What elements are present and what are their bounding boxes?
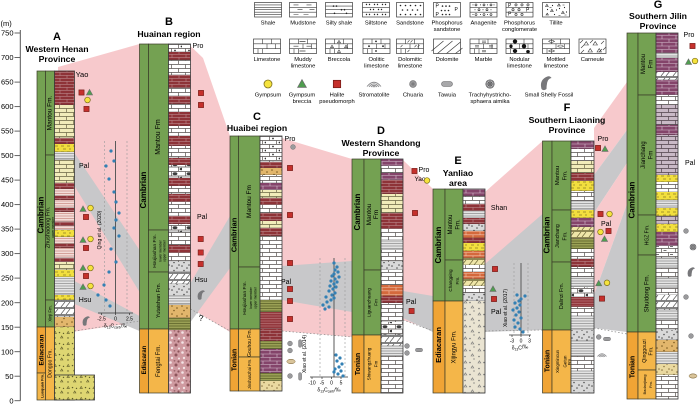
svg-text:sphaera aimika: sphaera aimika [470, 99, 510, 105]
svg-text:Mantou Fm: Mantou Fm [246, 185, 253, 218]
svg-text:2.5: 2.5 [126, 317, 133, 323]
svg-text:B: B [165, 16, 173, 28]
svg-text:limestone: limestone [398, 64, 423, 70]
svg-text:Ediacaran: Ediacaran [434, 327, 443, 363]
svg-text:Pal: Pal [406, 299, 417, 306]
svg-text:Fm: Fm [374, 299, 379, 306]
svg-text:F: F [564, 102, 571, 114]
svg-text:Mantou: Mantou [641, 54, 647, 74]
svg-text:Tonian: Tonian [231, 349, 238, 371]
svg-text:Fm.: Fm. [649, 347, 655, 356]
svg-text:?: ? [199, 314, 204, 323]
svg-text:Fm: Fm [649, 60, 655, 69]
svg-text:Mantou: Mantou [448, 214, 454, 234]
svg-text:E: E [454, 155, 461, 167]
svg-text:600: 600 [1, 102, 14, 111]
svg-text:C: C [253, 111, 261, 123]
svg-text:Mudstone: Mudstone [290, 21, 315, 27]
svg-text:450: 450 [1, 176, 14, 185]
svg-text:Anagenite: Anagenite [470, 21, 496, 27]
svg-text:HGZ Fm.: HGZ Fm. [645, 225, 651, 246]
svg-text:Xiao et al. (2017): Xiao et al. (2017) [503, 289, 509, 327]
svg-text:Breccola: Breccola [328, 57, 351, 63]
svg-text:Fm.: Fm. [648, 381, 653, 388]
svg-text:Yao: Yao [76, 70, 89, 79]
svg-text:Chuaria: Chuaria [403, 93, 424, 99]
svg-text:Fm: Fm [373, 210, 380, 219]
svg-text:Fm: Fm [649, 151, 655, 160]
svg-text:Tonian: Tonian [630, 356, 637, 378]
svg-text:Small Shelly Fossil: Small Shelly Fossil [525, 93, 574, 99]
svg-text:50: 50 [5, 372, 13, 381]
svg-text:Mantou Fm: Mantou Fm [155, 119, 162, 155]
svg-text:-5: -5 [320, 381, 325, 387]
svg-text:Pal: Pal [197, 214, 208, 221]
svg-text:Yanliao: Yanliao [443, 168, 473, 178]
svg-text:Silty shale: Silty shale [326, 21, 352, 27]
svg-text:Pro: Pro [285, 136, 296, 143]
svg-text:0: 0 [330, 381, 333, 387]
svg-text:Shiwangzhuang: Shiwangzhuang [367, 347, 372, 380]
svg-text:-3: -3 [510, 339, 515, 345]
svg-text:Southern Jilin: Southern Jilin [629, 11, 687, 21]
svg-text:Pal: Pal [79, 163, 90, 170]
svg-text:Xijingyu Fm.: Xijingyu Fm. [452, 330, 458, 363]
svg-text:Dongpo Fm.: Dongpo Fm. [48, 349, 54, 378]
svg-text:Sandstone: Sandstone [396, 21, 424, 27]
svg-text:Fm.: Fm. [563, 170, 569, 180]
svg-text:Pro: Pro [684, 32, 695, 39]
svg-text:Tillite: Tillite [549, 21, 562, 27]
svg-text:Yutaishan Fm.: Yutaishan Fm. [156, 282, 162, 318]
svg-text:upper member: upper member [163, 239, 167, 262]
svg-text:Gouhou Fm.: Gouhou Fm. [247, 329, 253, 357]
svg-text:Western Shandong: Western Shandong [342, 138, 421, 148]
svg-text:Houjiashan Fm.: Houjiashan Fm. [242, 281, 248, 315]
svg-text:sandstone: sandstone [434, 27, 461, 33]
svg-text:Ediacaran: Ediacaran [38, 334, 45, 365]
svg-text:Siltstone: Siltstone [365, 21, 387, 27]
svg-text:Marble: Marble [475, 57, 493, 63]
svg-text:Pal: Pal [601, 221, 612, 228]
svg-text:5: 5 [340, 381, 343, 387]
svg-text:Huaibei region: Huaibei region [227, 123, 287, 133]
svg-text:upper member: upper member [253, 286, 257, 309]
svg-text:-2.5: -2.5 [97, 317, 106, 323]
svg-text:Muddy: Muddy [294, 57, 312, 63]
svg-text:Qing et al. (2020): Qing et al. (2020) [97, 210, 103, 249]
svg-text:Tawuia: Tawuia [438, 93, 457, 99]
svg-text:limestone: limestone [291, 64, 316, 70]
svg-text:A: A [53, 31, 61, 43]
svg-text:Liguanzhuang: Liguanzhuang [367, 288, 372, 317]
svg-text:Mantou Fm.: Mantou Fm. [47, 95, 54, 130]
svg-text:250: 250 [1, 274, 14, 283]
svg-text:Qinggouzi: Qinggouzi [642, 339, 648, 362]
svg-text:Cambrian: Cambrian [353, 193, 362, 230]
svg-text:3: 3 [528, 339, 531, 345]
svg-text:(m): (m) [1, 19, 13, 28]
svg-text:δ13C/‰: δ13C/‰ [512, 345, 529, 352]
svg-text:limestone: limestone [364, 64, 389, 70]
svg-text:Gympsum: Gympsum [289, 93, 316, 99]
svg-text:Dolomite: Dolomite [436, 57, 459, 63]
svg-text:Province: Province [39, 54, 76, 64]
svg-text:Fm.: Fm. [563, 232, 569, 241]
svg-text:Nodular: Nodular [509, 57, 529, 63]
svg-text:Phosphorus: Phosphorus [504, 21, 535, 27]
svg-text:Pal: Pal [281, 279, 292, 286]
svg-text:breccia: breccia [293, 99, 312, 105]
svg-text:650: 650 [1, 78, 14, 87]
svg-text:Oolitic: Oolitic [368, 57, 384, 63]
svg-text:Hsu: Hsu [195, 277, 208, 284]
svg-text:Mantou: Mantou [555, 166, 561, 185]
svg-text:lower member: lower member [249, 286, 253, 308]
svg-text:400: 400 [1, 200, 14, 209]
svg-text:limestone: limestone [544, 64, 569, 70]
svg-text:Pal: Pal [491, 309, 502, 316]
svg-text:350: 350 [1, 225, 14, 234]
svg-text:Jianchang: Jianchang [641, 141, 647, 168]
svg-text:Pal: Pal [685, 160, 696, 167]
svg-text:Province: Province [549, 125, 586, 135]
svg-text:Changping: Changping [448, 269, 453, 292]
svg-text:D: D [377, 125, 385, 137]
svg-text:Stromatolite: Stromatolite [359, 93, 390, 99]
svg-text:Fm: Fm [374, 361, 379, 368]
svg-text:100: 100 [1, 347, 14, 356]
svg-text:Pro: Pro [193, 43, 204, 50]
svg-text:Limestone: Limestone [254, 57, 281, 63]
svg-text:Province: Province [363, 148, 400, 158]
svg-text:area: area [449, 178, 467, 188]
svg-text:Tonian: Tonian [544, 350, 551, 372]
svg-text:G: G [654, 0, 663, 11]
svg-text:500: 500 [1, 151, 14, 160]
svg-text:Badaojiang: Badaojiang [642, 374, 647, 394]
svg-text:Ediacaran: Ediacaran [142, 345, 148, 374]
svg-text:0: 0 [114, 317, 117, 323]
svg-text:limestone: limestone [507, 64, 532, 70]
svg-text:conglomerate: conglomerate [502, 27, 537, 33]
svg-text:Cambrian: Cambrian [628, 181, 637, 218]
svg-text:Halite: Halite [330, 93, 345, 99]
svg-text:Houjiashan Fm.: Houjiashan Fm. [152, 234, 158, 268]
svg-text:Xinji Fm.: Xinji Fm. [48, 305, 53, 321]
svg-text:Fm.: Fm. [455, 277, 460, 285]
svg-text:Pro: Pro [419, 167, 430, 174]
svg-text:Carneule: Carneule [581, 57, 605, 63]
svg-text:Jianchang: Jianchang [555, 224, 561, 248]
svg-text:Southern Liaoning: Southern Liaoning [529, 115, 606, 125]
svg-text:-10: -10 [308, 381, 315, 387]
svg-text:Huainan region: Huainan region [137, 29, 200, 39]
svg-text:Gympsum: Gympsum [255, 93, 282, 99]
svg-text:0: 0 [9, 396, 13, 405]
svg-text:Fm.: Fm. [456, 219, 462, 230]
svg-text:Hsu: Hsu [79, 297, 92, 304]
svg-text:Shan: Shan [491, 205, 507, 212]
svg-text:Western Henan: Western Henan [25, 44, 88, 54]
svg-text:Mottled: Mottled [546, 57, 565, 63]
svg-text:Mantou: Mantou [366, 203, 373, 225]
svg-text:Cambrian: Cambrian [229, 217, 238, 252]
svg-text:Province: Province [640, 21, 677, 31]
svg-text:Jinshanzhai Fm.: Jinshanzhai Fm. [247, 359, 252, 390]
svg-text:Shuidong Fm.: Shuidong Fm. [645, 274, 651, 312]
svg-text:Cambrian: Cambrian [139, 171, 148, 208]
svg-text:Cambrian: Cambrian [434, 226, 443, 263]
svg-text:700: 700 [1, 53, 14, 62]
svg-text:200: 200 [1, 298, 14, 307]
svg-text:Dolomitic: Dolomitic [398, 57, 422, 63]
svg-text:Fengtai Fm.: Fengtai Fm. [156, 345, 162, 377]
svg-text:300: 300 [1, 249, 14, 258]
svg-text:Pro: Pro [598, 136, 609, 143]
svg-text:pseudomorph: pseudomorph [319, 99, 354, 105]
svg-text:Phosphorus: Phosphorus [432, 21, 463, 27]
svg-text:Dalinzi Fm.: Dalinzi Fm. [559, 283, 565, 309]
svg-text:Xiao et al. (2014): Xiao et al. (2014) [302, 335, 308, 373]
svg-text:550: 550 [1, 127, 14, 136]
svg-text:Cambrian: Cambrian [542, 216, 551, 253]
svg-text:Xingmincun: Xingmincun [555, 349, 560, 372]
svg-text:Luoquan Fm.: Luoquan Fm. [40, 374, 44, 398]
svg-text:Tonian: Tonian [355, 353, 362, 375]
svg-text:Cambrian: Cambrian [36, 196, 45, 233]
svg-text:Trachyhystricho-: Trachyhystricho- [469, 93, 512, 99]
svg-text:750: 750 [1, 29, 14, 38]
svg-text:Shale: Shale [261, 21, 276, 27]
svg-text:150: 150 [1, 323, 14, 332]
